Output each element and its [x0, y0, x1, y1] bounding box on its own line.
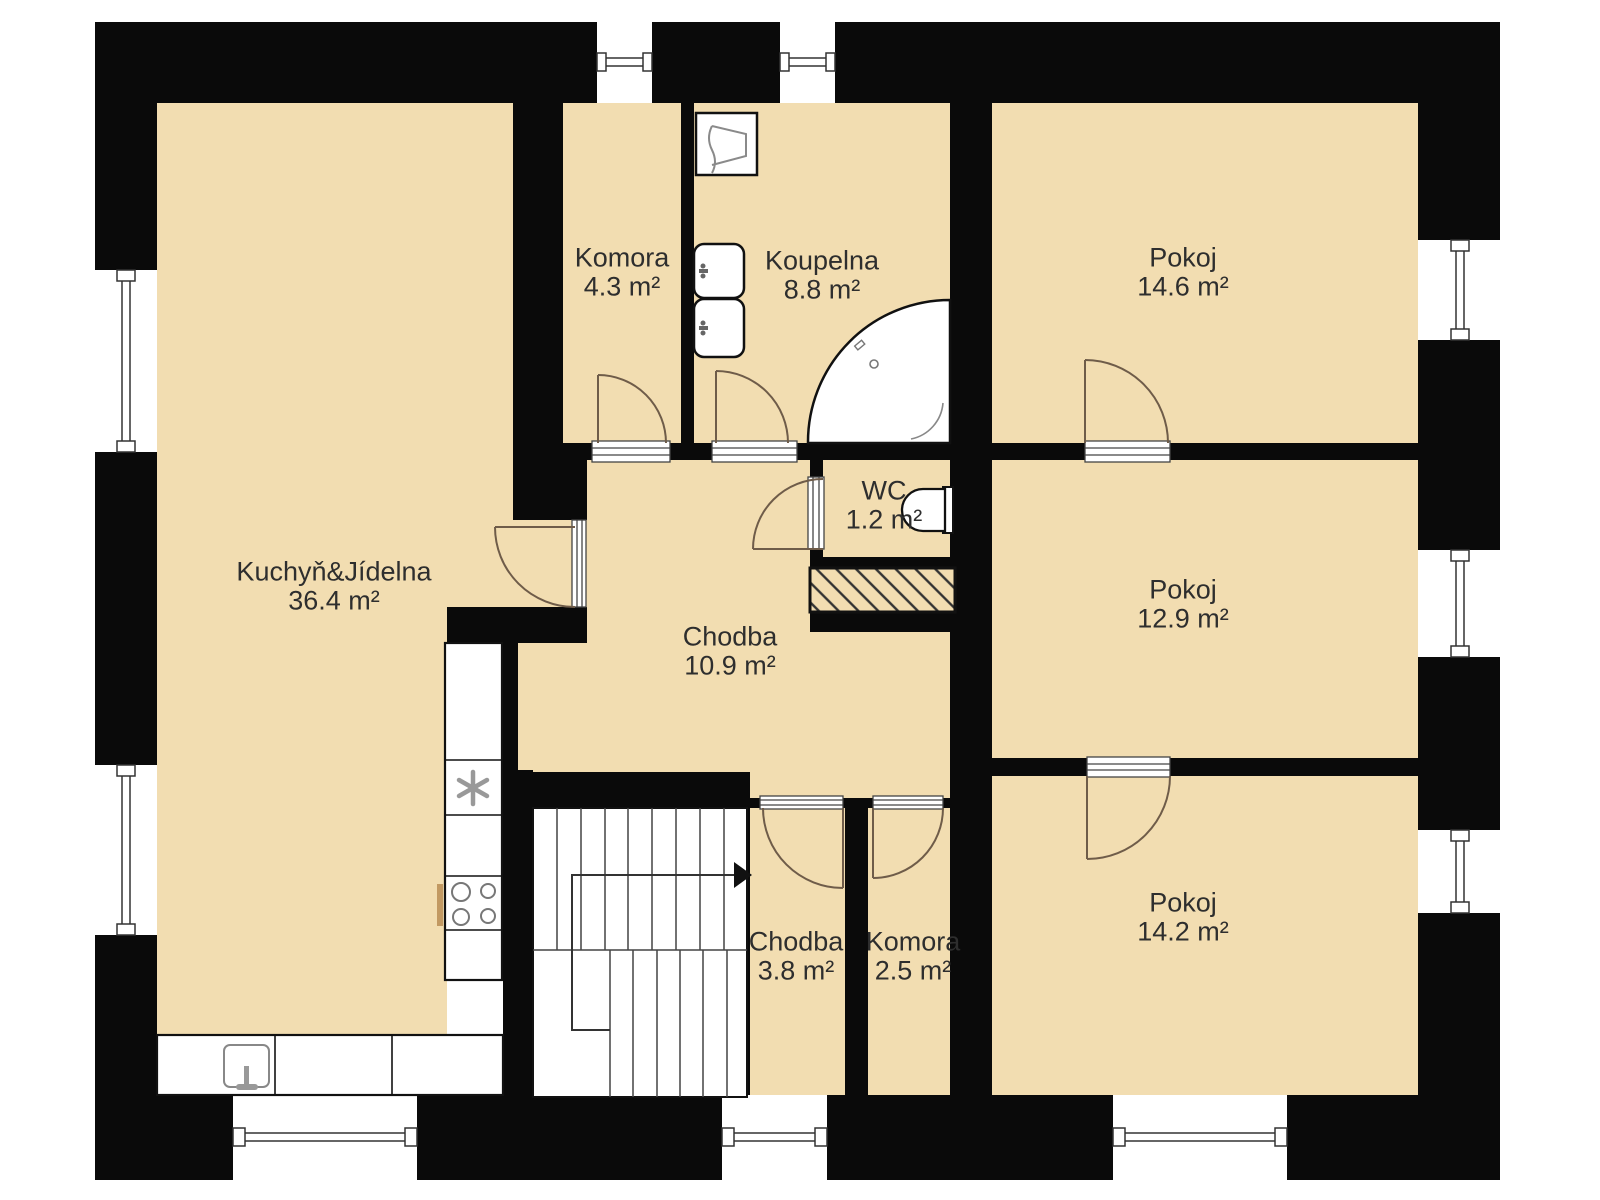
room-area: 12.9 m² — [1137, 604, 1229, 633]
room-area: 8.8 m² — [765, 275, 879, 304]
window — [1418, 240, 1500, 340]
room-name: Pokoj — [1149, 574, 1217, 604]
floorplan-canvas: Kuchyň&Jídelna 36.4 m² Komora 4.3 m² Kou… — [0, 0, 1600, 1200]
wall-segment — [943, 798, 955, 808]
washing-machine — [696, 113, 757, 175]
room-name: Pokoj — [1149, 242, 1217, 272]
door-frame — [873, 796, 943, 809]
door-frame — [808, 477, 824, 549]
bathroom-sink — [694, 244, 744, 298]
wall-segment — [652, 22, 780, 103]
room-name: WC — [862, 475, 907, 505]
wall-segment — [447, 607, 587, 643]
room-area: 10.9 m² — [683, 651, 778, 680]
staircase — [533, 808, 752, 1097]
room-area: 3.8 m² — [749, 956, 844, 985]
wall-segment — [95, 22, 157, 270]
wall-segment — [1287, 1095, 1500, 1180]
wall-segment — [681, 103, 694, 443]
door-frame — [1085, 441, 1170, 462]
room-area: 14.6 m² — [1137, 272, 1229, 301]
wall-segment — [843, 798, 873, 808]
room-name: Kuchyň&Jídelna — [236, 556, 431, 586]
room-name: Pokoj — [1149, 887, 1217, 917]
oven-handle — [437, 884, 443, 926]
window — [722, 1095, 827, 1180]
wall-segment — [503, 770, 533, 1097]
room-label-pokoj-middle: Pokoj 12.9 m² — [1137, 575, 1229, 632]
wall-segment — [845, 808, 868, 1095]
window — [1418, 830, 1500, 913]
room-label-chodba-main: Chodba 10.9 m² — [683, 622, 778, 679]
wall-segment — [810, 557, 955, 568]
room-area: 1.2 m² — [846, 505, 923, 534]
room-label-pokoj-bottom: Pokoj 14.2 m² — [1137, 888, 1229, 945]
door-frame — [1087, 757, 1170, 777]
kitchen-sink — [224, 1045, 269, 1090]
wall-segment — [992, 758, 1087, 776]
wall-segment — [810, 612, 955, 632]
wall-segment — [513, 103, 563, 443]
room-label-komora-lower: Komora 2.5 m² — [866, 927, 961, 984]
bathroom-sink — [694, 299, 744, 357]
wall-segment — [992, 443, 1085, 460]
wall-segment — [1418, 340, 1500, 550]
wall-segment — [518, 772, 750, 808]
door-frame — [712, 441, 797, 462]
wall-segment — [810, 460, 823, 477]
wall-segment — [827, 1095, 1113, 1180]
room-area: 2.5 m² — [866, 956, 961, 985]
wall-segment — [95, 1095, 233, 1180]
room-label-komora-top: Komora 4.3 m² — [575, 243, 670, 300]
room-area: 36.4 m² — [236, 586, 431, 615]
ventilation-shaft — [810, 568, 955, 612]
room-name: Koupelna — [765, 245, 879, 275]
room-label-pokoj-top: Pokoj 14.6 m² — [1137, 243, 1229, 300]
door-frame — [760, 796, 843, 809]
window — [95, 765, 157, 935]
window — [1113, 1095, 1287, 1180]
room-label-chodba-lower: Chodba 3.8 m² — [749, 927, 844, 984]
room-area: 14.2 m² — [1137, 917, 1229, 946]
window — [780, 22, 835, 103]
kitchen-door-nook-floor — [513, 520, 573, 607]
kitchen-counter-bottom — [157, 1035, 503, 1095]
room-name: Chodba — [683, 621, 778, 651]
wall-segment — [835, 22, 1500, 103]
wall-segment — [1170, 758, 1418, 776]
wall-segment — [95, 22, 597, 103]
door-frame — [592, 441, 670, 462]
room-label-kitchen: Kuchyň&Jídelna 36.4 m² — [236, 557, 431, 614]
wall-segment — [1170, 443, 1418, 460]
window — [1418, 550, 1500, 657]
window — [233, 1095, 417, 1180]
wall-segment — [563, 443, 592, 460]
room-name: Komora — [575, 242, 670, 272]
wall-segment — [1418, 22, 1500, 240]
wall-segment — [1418, 657, 1500, 830]
room-label-wc: WC 1.2 m² — [846, 476, 923, 533]
wall-segment — [95, 452, 157, 765]
window — [95, 270, 157, 452]
room-name: Chodba — [749, 926, 844, 956]
door-frame — [572, 520, 586, 607]
wall-segment — [417, 1095, 722, 1180]
room-name: Komora — [866, 926, 961, 956]
wall-segment — [502, 643, 518, 772]
wall-segment — [797, 443, 955, 460]
room-label-koupelna: Koupelna 8.8 m² — [765, 246, 879, 303]
room-area: 4.3 m² — [575, 272, 670, 301]
wall-segment — [750, 798, 760, 808]
wall-segment — [670, 443, 712, 460]
window — [597, 22, 652, 103]
kitchen-counter-column — [445, 643, 502, 980]
